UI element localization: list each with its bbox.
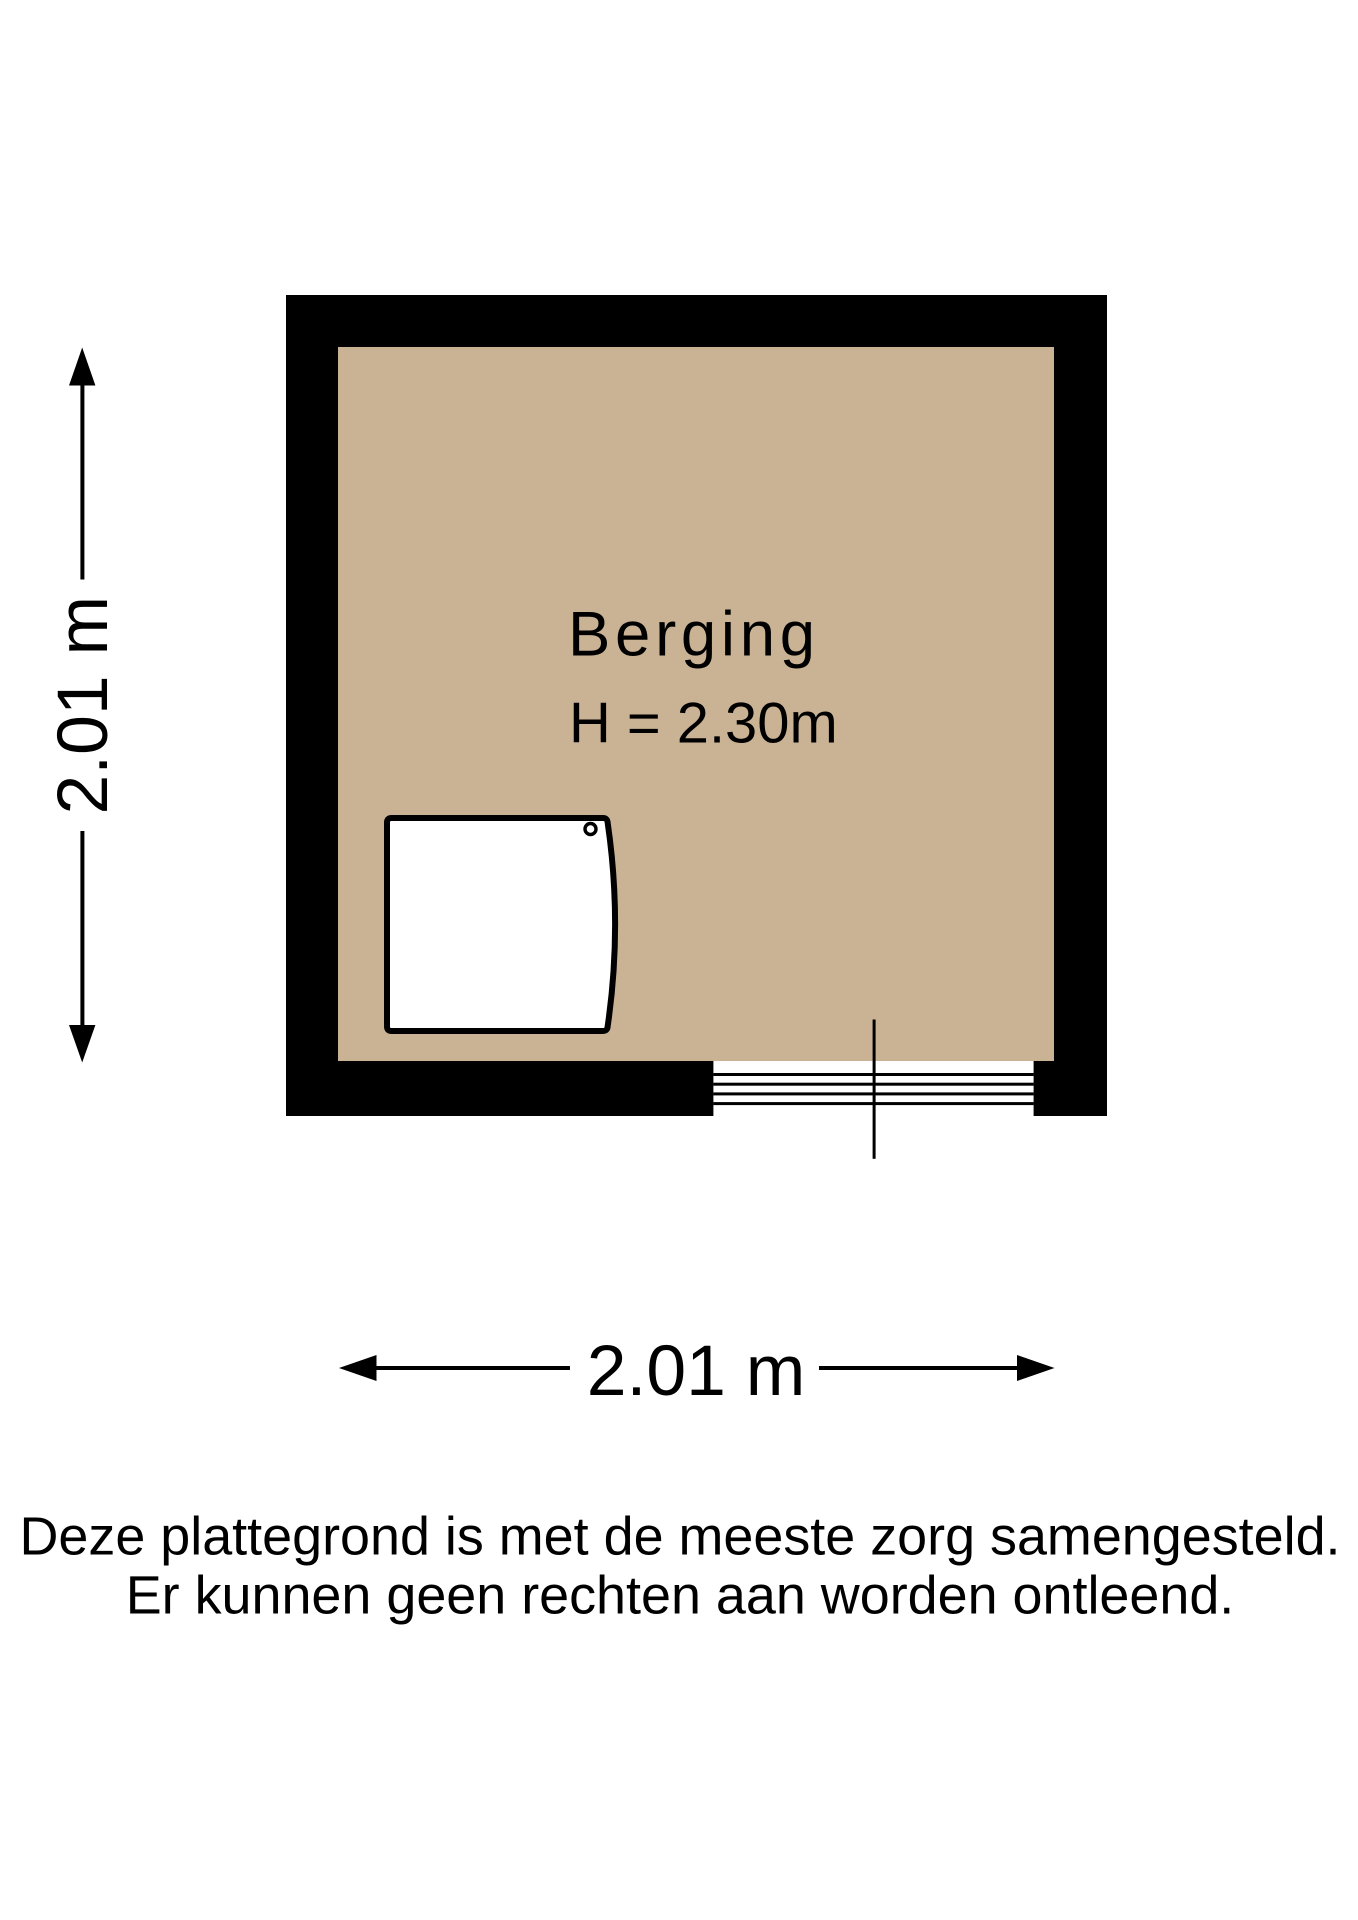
svg-text:H = 2.30m: H = 2.30m xyxy=(569,692,838,756)
svg-text:Er kunnen geen rechten aan wor: Er kunnen geen rechten aan worden ontlee… xyxy=(126,1566,1235,1626)
svg-text:Deze plattegrond is met de mee: Deze plattegrond is met de meeste zorg s… xyxy=(19,1507,1340,1567)
svg-text:Berging: Berging xyxy=(568,600,820,670)
svg-text:2.01 m: 2.01 m xyxy=(43,596,123,815)
svg-text:2.01 m: 2.01 m xyxy=(587,1331,806,1411)
